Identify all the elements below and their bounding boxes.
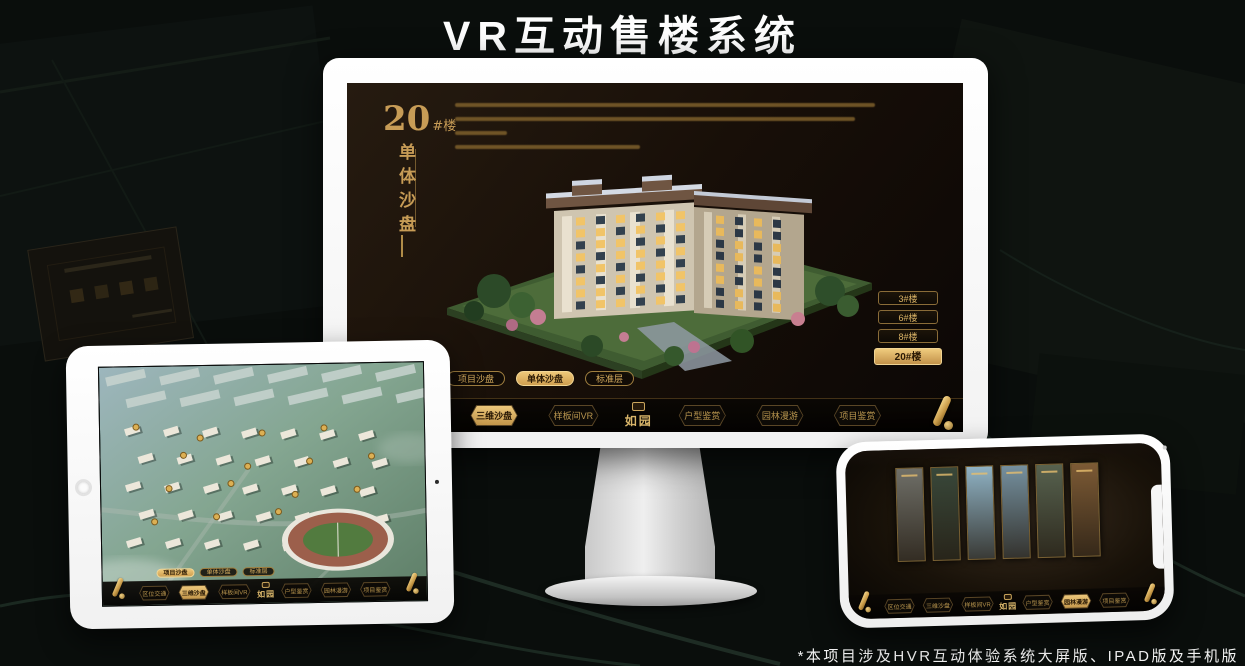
ipad-screen: 项目沙盘单体沙盘标准层 区位交通三维沙盘样板间VR如园户型鉴赏园林漫游项目鉴赏 — [98, 361, 428, 607]
menu-item-区位交通[interactable]: 区位交通 — [881, 598, 917, 614]
menu-item-三维沙盘[interactable]: 三维沙盘 — [466, 405, 522, 426]
menu-item-label: 样板间VR — [216, 585, 253, 599]
menu-item-园林漫游[interactable]: 园林漫游 — [1058, 593, 1094, 609]
panel-garden-sky[interactable] — [965, 465, 996, 560]
menu-item-label: 三维沙盘 — [921, 598, 955, 612]
brand-logo: 如园 — [625, 402, 653, 429]
menu-item-样板间VR[interactable]: 样板间VR — [215, 584, 254, 600]
promo-poster: VR互动售楼系统 *本项目涉及HVR互动体验系统大屏版、IPAD版及手机版 20… — [0, 0, 1245, 666]
scroll-icon[interactable] — [110, 578, 126, 599]
brand-logo: 如园 — [257, 582, 275, 600]
menu-item-label: 区位交通 — [137, 586, 171, 600]
tab-标准层[interactable]: 标准层 — [242, 567, 274, 577]
menu-item-label: 户型鉴赏 — [675, 406, 729, 425]
menu-item-label: 区位交通 — [882, 599, 916, 613]
panel-interior-grey[interactable] — [895, 467, 926, 562]
brand-seal-icon — [632, 402, 645, 411]
ipad: 项目沙盘单体沙盘标准层 区位交通三维沙盘样板间VR如园户型鉴赏园林漫游项目鉴赏 — [66, 340, 455, 630]
scroll-icon[interactable] — [929, 396, 955, 430]
menu-item-园林漫游[interactable]: 园林漫游 — [318, 582, 354, 598]
block-number: 20 — [383, 99, 430, 139]
ipad-subtabs: 项目沙盘单体沙盘标准层 — [156, 567, 274, 578]
vertical-title: 单体沙盘 — [393, 143, 418, 239]
phone: 区位交通三维沙盘样板间VR如园户型鉴赏园林漫游项目鉴赏 — [835, 433, 1174, 628]
scene-ceiling-beam — [845, 443, 1161, 468]
ipad-camera-icon — [435, 479, 439, 483]
menu-item-三维沙盘[interactable]: 三维沙盘 — [176, 584, 212, 600]
monitor-stand-neck — [585, 446, 715, 586]
scroll-icon[interactable] — [404, 573, 420, 594]
panel-street[interactable] — [1035, 463, 1066, 558]
menu-item-label: 户型鉴赏 — [1020, 595, 1054, 609]
building-button-6#楼[interactable]: 6#楼 — [878, 310, 938, 324]
menu-item-label: 项目鉴赏 — [830, 406, 884, 425]
page-title: VR互动售楼系统 — [0, 2, 1245, 62]
menu-item-样板间VR[interactable]: 样板间VR — [958, 596, 997, 612]
menu-item-label: 项目鉴赏 — [1097, 593, 1131, 607]
phone-screen: 区位交通三维沙盘样板间VR如园户型鉴赏园林漫游项目鉴赏 — [845, 443, 1166, 620]
menu-item-户型鉴赏[interactable]: 户型鉴赏 — [674, 405, 730, 426]
tab-项目沙盘[interactable]: 项目沙盘 — [447, 371, 505, 386]
phone-camera-icon — [1163, 445, 1167, 449]
tab-标准层[interactable]: 标准层 — [585, 371, 634, 386]
tab-项目沙盘[interactable]: 项目沙盘 — [156, 568, 194, 578]
block-title: 20#楼 — [383, 99, 456, 139]
brand-logo-text: 如园 — [257, 589, 275, 600]
building-3d-model[interactable] — [442, 143, 872, 393]
title-rule — [401, 235, 403, 257]
building-button-group: 3#楼6#楼8#楼20#楼 — [869, 291, 947, 365]
building-button-8#楼[interactable]: 8#楼 — [878, 329, 938, 343]
menu-item-label: 园林漫游 — [753, 406, 807, 425]
brand-logo-text: 如园 — [625, 412, 653, 429]
menu-item-label: 园林漫游 — [319, 583, 353, 597]
tab-单体沙盘[interactable]: 单体沙盘 — [516, 371, 574, 386]
building-button-3#楼[interactable]: 3#楼 — [878, 291, 938, 305]
menu-item-户型鉴赏[interactable]: 户型鉴赏 — [278, 583, 314, 599]
block-suffix: #楼 — [432, 119, 456, 134]
menu-item-label: 样板间VR — [959, 597, 996, 611]
menu-item-项目鉴赏[interactable]: 项目鉴赏 — [829, 405, 885, 426]
menu-item-项目鉴赏[interactable]: 项目鉴赏 — [1096, 592, 1132, 608]
brand-seal-icon — [1004, 594, 1012, 600]
menu-item-户型鉴赏[interactable]: 户型鉴赏 — [1019, 594, 1055, 610]
brand-seal-icon — [262, 582, 270, 588]
phone-notch — [1151, 485, 1164, 569]
building-button-20#楼[interactable]: 20#楼 — [874, 348, 942, 365]
scroll-icon[interactable] — [856, 591, 873, 613]
scene-gallery — [895, 462, 1101, 562]
menu-item-三维沙盘[interactable]: 三维沙盘 — [920, 597, 956, 613]
menu-item-项目鉴赏[interactable]: 项目鉴赏 — [357, 581, 393, 597]
menu-item-样板间VR[interactable]: 样板间VR — [544, 405, 604, 426]
monitor-subtabs: 项目沙盘单体沙盘标准层 — [447, 371, 634, 386]
menu-item-label: 三维沙盘 — [177, 585, 211, 599]
monitor-stand-foot — [545, 576, 757, 606]
text-line — [455, 131, 507, 135]
brand-logo-text: 如园 — [999, 601, 1017, 612]
brand-logo: 如园 — [999, 594, 1017, 612]
menu-item-区位交通[interactable]: 区位交通 — [136, 585, 172, 601]
panel-clubhouse-warm[interactable] — [1070, 462, 1101, 557]
menu-item-label: 三维沙盘 — [467, 406, 521, 425]
scroll-icon[interactable] — [1141, 583, 1158, 605]
menu-item-label: 样板间VR — [545, 406, 603, 425]
text-line — [455, 103, 875, 107]
ipad-home-button[interactable] — [75, 478, 92, 495]
phone-menu-bar: 区位交通三维沙盘样板间VR如园户型鉴赏园林漫游项目鉴赏 — [849, 587, 1166, 620]
menu-item-园林漫游[interactable]: 园林漫游 — [752, 405, 808, 426]
tab-单体沙盘[interactable]: 单体沙盘 — [199, 567, 237, 577]
menu-item-label: 项目鉴赏 — [358, 582, 392, 596]
panel-courtyard[interactable] — [930, 466, 961, 561]
footnote: *本项目涉及HVR互动体验系统大屏版、IPAD版及手机版 — [798, 645, 1239, 666]
text-line — [455, 117, 855, 121]
menu-item-label: 园林漫游 — [1059, 594, 1093, 608]
menu-item-label: 户型鉴赏 — [279, 584, 313, 598]
panel-building-blue[interactable] — [1000, 464, 1031, 559]
